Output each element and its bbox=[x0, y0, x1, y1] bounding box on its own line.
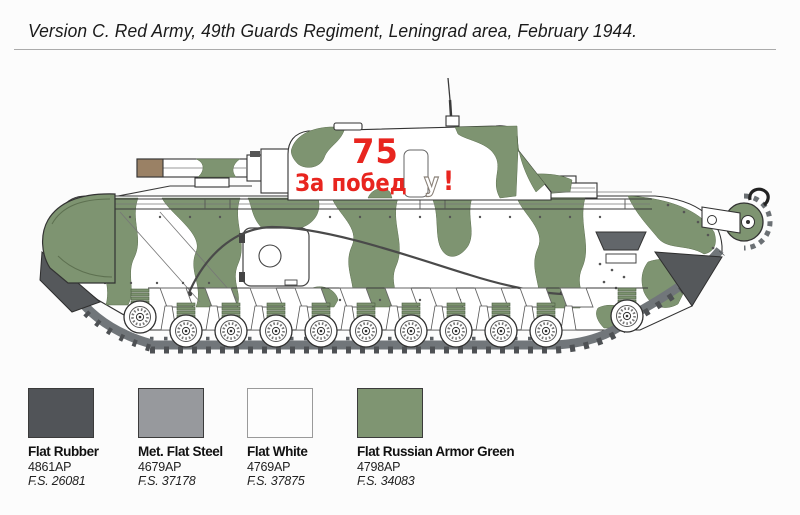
color-chip-flat-white bbox=[247, 388, 313, 438]
instruction-page: Version C. Red Army, 49th Guards Regimen… bbox=[0, 0, 800, 515]
color-chip-flat-russian-armor-green bbox=[357, 388, 423, 438]
color-chip-met-flat-steel bbox=[138, 388, 204, 438]
antenna-mount bbox=[446, 116, 459, 126]
legend-swatch: Flat White 4769AP F.S. 37875 bbox=[247, 388, 313, 488]
antenna bbox=[448, 78, 451, 116]
paint-name: Flat Rubber bbox=[28, 445, 99, 460]
paint-code: 4769AP bbox=[247, 460, 313, 474]
slogan-text: За побед bbox=[295, 170, 407, 198]
federal-standard-code: F.S. 26081 bbox=[28, 474, 99, 488]
color-legend: Flat Rubber 4861AP F.S. 26081 Met. Flat … bbox=[0, 388, 800, 508]
legend-swatch: Flat Rubber 4861AP F.S. 26081 bbox=[28, 388, 99, 488]
slogan-exclamation: ! bbox=[443, 166, 454, 198]
federal-standard-code: F.S. 37875 bbox=[247, 474, 313, 488]
gun-mantlet bbox=[261, 149, 291, 193]
front-horn bbox=[43, 194, 115, 283]
paint-code: 4861AP bbox=[28, 460, 99, 474]
turret: 75 За побед ! у bbox=[288, 116, 551, 200]
barrel-tip bbox=[137, 159, 163, 177]
federal-standard-code: F.S. 37178 bbox=[138, 474, 223, 488]
paint-name: Met. Flat Steel bbox=[138, 445, 223, 460]
tank-profile-illustration: 75 За побед ! у bbox=[0, 50, 800, 380]
page-title: Version C. Red Army, 49th Guards Regimen… bbox=[28, 21, 637, 42]
tow-hook bbox=[750, 189, 768, 205]
legend-swatch: Flat Russian Armor Green 4798AP F.S. 340… bbox=[357, 388, 514, 488]
paint-code: 4679AP bbox=[138, 460, 223, 474]
color-chip-flat-rubber bbox=[28, 388, 94, 438]
paint-code: 4798AP bbox=[357, 460, 514, 474]
federal-standard-code: F.S. 34083 bbox=[357, 474, 514, 488]
paint-name: Flat Russian Armor Green bbox=[357, 445, 514, 460]
paint-name: Flat White bbox=[247, 445, 313, 460]
legend-swatch: Met. Flat Steel 4679AP F.S. 37178 bbox=[138, 388, 223, 488]
slogan-outlined-letter: у bbox=[424, 167, 439, 198]
periscope bbox=[334, 123, 362, 130]
turret-number: 75 bbox=[352, 131, 399, 171]
driver-visor bbox=[195, 178, 229, 187]
